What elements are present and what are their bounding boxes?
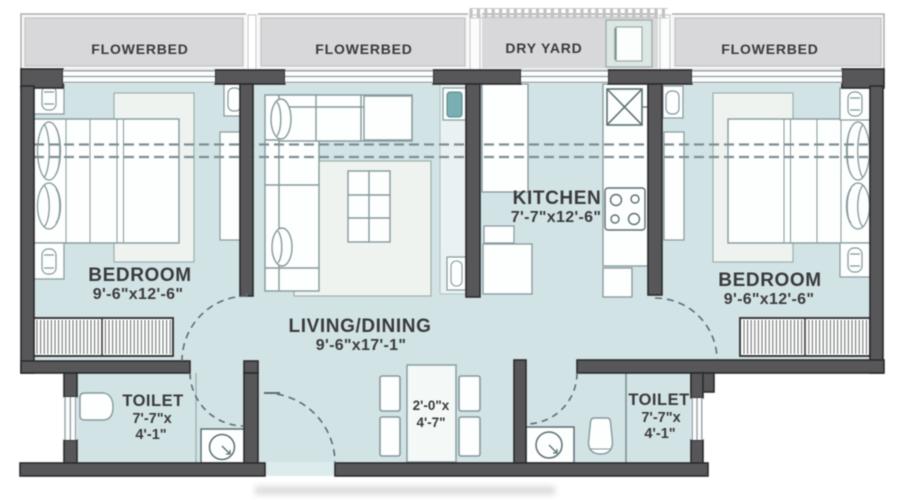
svg-text:4'-7": 4'-7" — [416, 415, 445, 430]
svg-text:TOILET: TOILET — [122, 392, 183, 410]
svg-text:9'-6"x12'-6": 9'-6"x12'-6" — [724, 291, 814, 308]
svg-text:4'-1": 4'-1" — [135, 427, 166, 443]
svg-text:7'-7"x: 7'-7"x — [132, 411, 171, 427]
svg-text:FLOWERBED: FLOWERBED — [91, 41, 188, 57]
svg-text:DRY YARD: DRY YARD — [505, 40, 582, 56]
svg-text:BEDROOM: BEDROOM — [88, 265, 191, 286]
svg-text:4'-1": 4'-1" — [644, 426, 675, 442]
svg-text:9'-6"x17'-1": 9'-6"x17'-1" — [316, 337, 406, 354]
svg-text:FLOWERBED: FLOWERBED — [721, 41, 818, 57]
svg-text:9'-6"x12'-6": 9'-6"x12'-6" — [93, 286, 183, 303]
svg-text:BEDROOM: BEDROOM — [718, 270, 821, 291]
svg-text:7'-7"x: 7'-7"x — [641, 410, 680, 426]
svg-text:LIVING/DINING: LIVING/DINING — [289, 316, 432, 337]
svg-text:KITCHEN: KITCHEN — [513, 188, 602, 209]
svg-text:2'-0"x: 2'-0"x — [413, 398, 450, 413]
svg-text:FLOWERBED: FLOWERBED — [315, 41, 412, 57]
svg-text:7'-7"x12'-6": 7'-7"x12'-6" — [511, 209, 601, 226]
svg-text:TOILET: TOILET — [628, 391, 689, 409]
